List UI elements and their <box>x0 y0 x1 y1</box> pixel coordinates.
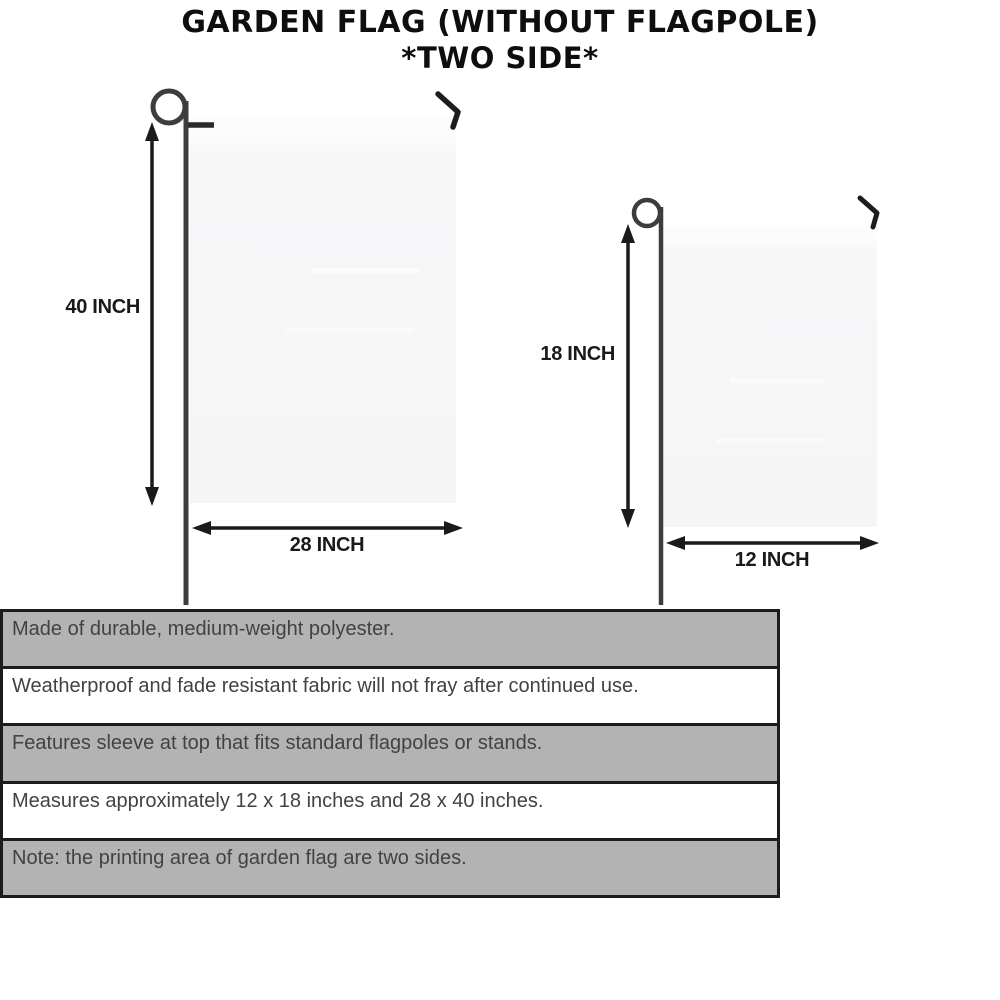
small-flag-fabric <box>663 225 877 527</box>
feature-row: Note: the printing area of garden flag a… <box>3 841 777 895</box>
large-flag-group <box>145 91 463 605</box>
small-flag-width-arrow <box>666 536 879 550</box>
large-flag-fold-highlight <box>310 268 420 274</box>
small-flag-width-label: 12 INCH <box>672 549 872 572</box>
large-flag-width-arrow <box>192 521 463 535</box>
large-flag-width-label: 28 INCH <box>227 534 427 557</box>
large-flag-height-label: 40 INCH <box>40 296 140 319</box>
small-flag-pole-loop <box>634 200 660 226</box>
large-flag-height-arrow <box>145 122 159 506</box>
feature-row: Features sleeve at top that fits standar… <box>3 726 777 783</box>
feature-text: Measures approximately 12 x 18 inches an… <box>12 790 543 812</box>
features-table: Made of durable, medium-weight polyester… <box>0 609 780 898</box>
large-flag-pole-loop <box>153 91 185 123</box>
feature-text: Features sleeve at top that fits standar… <box>12 732 542 754</box>
feature-text: Weatherproof and fade resistant fabric w… <box>12 675 639 697</box>
small-flag-height-arrow <box>621 224 635 528</box>
feature-text: Made of durable, medium-weight polyester… <box>12 618 394 640</box>
feature-row: Weatherproof and fade resistant fabric w… <box>3 669 777 726</box>
large-flag-fold-highlight <box>285 328 415 333</box>
garden-flag-infographic: GARDEN FLAG (WITHOUT FLAGPOLE) *TWO SIDE… <box>0 0 1000 1000</box>
small-flag-hanger-hook <box>860 198 877 227</box>
feature-text: Note: the printing area of garden flag a… <box>12 847 467 869</box>
large-flag-fabric <box>190 117 456 503</box>
small-flag-fold-highlight <box>715 438 825 443</box>
small-flag-group <box>621 198 879 605</box>
feature-row: Measures approximately 12 x 18 inches an… <box>3 784 777 841</box>
feature-row: Made of durable, medium-weight polyester… <box>3 612 777 669</box>
small-flag-height-label: 18 INCH <box>513 343 615 366</box>
small-flag-fold-highlight <box>730 378 825 383</box>
